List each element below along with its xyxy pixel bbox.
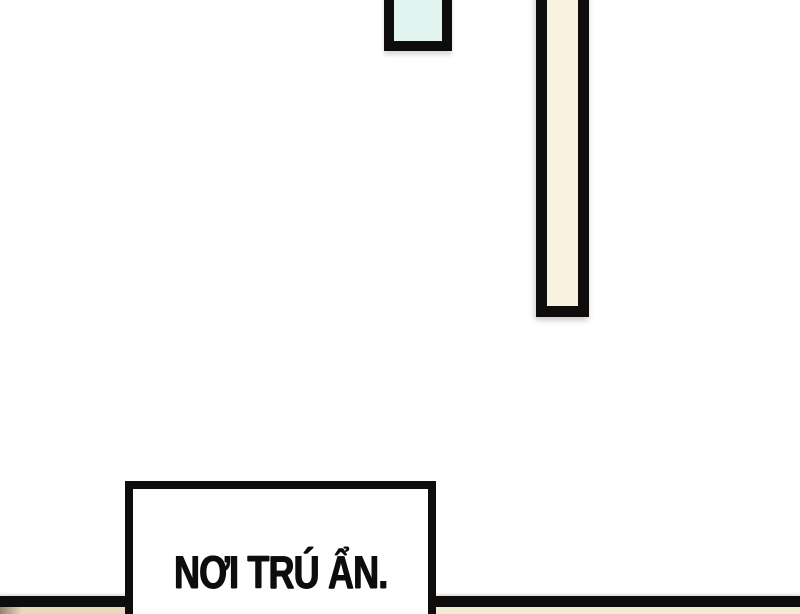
caption-text: NƠI TRÚ ẨN.: [174, 549, 387, 595]
caption-box: NƠI TRÚ ẨN.: [125, 481, 436, 614]
window-pane-rect: [384, 0, 452, 51]
comic-page: NƠI TRÚ ẨN.: [0, 0, 800, 614]
pillar-rect: [536, 0, 589, 317]
next-panel-floor-right: [430, 607, 800, 614]
next-panel-floor-left: [0, 607, 130, 614]
